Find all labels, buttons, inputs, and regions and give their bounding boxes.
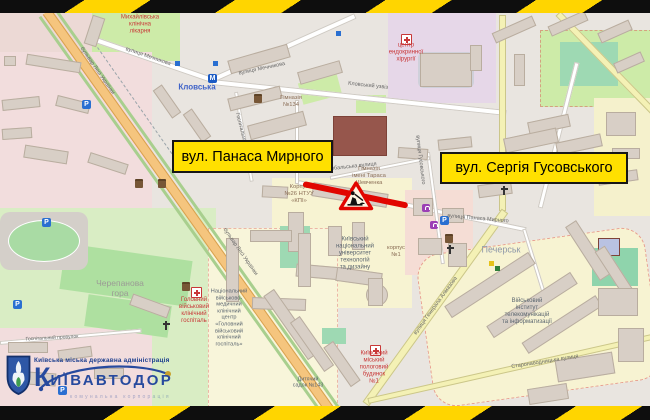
poi-blue-icon — [175, 61, 180, 66]
parking-icon: P — [42, 218, 51, 227]
parking-icon: P — [82, 100, 91, 109]
map-label-gymnasium-134: Гімназія №134 — [280, 95, 302, 109]
banner-serhiia-husovskoho-text: вул. Сергія Гусовського — [455, 160, 612, 176]
map-label-maternity-hospital-1: Київський міський пологовий будинок №1 — [360, 350, 389, 385]
parking-icon: P — [13, 300, 22, 309]
map-label-military-telecom-institute: Військовий інститут телекомунікацій та і… — [502, 298, 552, 326]
library-icon — [254, 94, 262, 103]
map-label-mykhailivska-hospital: Михайлівська клінічна лікарня — [121, 14, 159, 35]
map-announcement-image: M P P P P P Михайлівська клінічна лікарн… — [0, 0, 650, 420]
shop-icon — [422, 204, 430, 212]
metro-entrance-icon — [495, 266, 500, 271]
building — [250, 230, 292, 242]
logo-subtitle: комунальна корпорація — [70, 394, 171, 400]
building — [418, 238, 442, 255]
shop-icon — [430, 221, 438, 229]
banner-panasa-myrnoho: вул. Панаса Мирного — [172, 140, 333, 173]
building — [183, 108, 212, 142]
building — [420, 53, 472, 87]
building — [298, 233, 311, 287]
metro-entrance-icon — [489, 261, 494, 266]
map-label-pechersk-station: Печерськ — [481, 245, 520, 256]
banner-serhiia-husovskoho: вул. Сергія Гусовського — [440, 152, 628, 184]
building — [606, 112, 636, 136]
building — [368, 278, 383, 306]
logo-brand-initial: К — [34, 366, 50, 389]
logo-brand-rest: ИЇВАВТОДОР — [50, 373, 173, 389]
building — [598, 288, 638, 316]
poi-blue-icon — [336, 31, 341, 36]
church-icon — [446, 244, 454, 254]
building — [153, 84, 182, 118]
church-icon — [162, 320, 170, 330]
map-label-korpus-1: корпус №1 — [387, 245, 405, 259]
scales-icon — [445, 234, 453, 243]
building — [514, 54, 525, 86]
banner-panasa-myrnoho-text: вул. Панаса Мирного — [181, 149, 323, 165]
museum-icon — [158, 179, 166, 188]
hazard-stripe-bottom — [0, 406, 650, 420]
building — [470, 45, 482, 71]
kyivavtodor-logo: Київська міська державна адміністрація К… — [4, 350, 204, 402]
map-label-knutd-university: Київський національний університет техно… — [336, 236, 374, 271]
hazard-stripe-top — [0, 0, 650, 13]
map-label-klovska-station: Кловська — [178, 82, 215, 91]
roadworks-sign-icon — [338, 180, 374, 217]
map-label-endocrine-center: центр ендокринної хірургії — [389, 42, 423, 63]
logo-brand-text: КИЇВАВТОДОР — [34, 366, 173, 389]
map-label-military-medical-center: Національний військово- медичний клінічн… — [211, 288, 247, 347]
map-label-kindergarten-143: Дитячий садок №143 — [293, 377, 323, 390]
building — [2, 127, 33, 140]
church-icon — [500, 185, 508, 195]
kyiv-coat-of-arms-icon — [6, 355, 31, 396]
map-label-cherepanova-hora: Черепанова гора — [96, 278, 144, 298]
museum-icon — [135, 179, 143, 188]
building — [618, 328, 644, 362]
map-label-military-hospital-red: Головний військовий клінічний госпіталь — [179, 297, 209, 325]
poi-blue-icon — [213, 61, 218, 66]
building — [438, 136, 473, 150]
building — [4, 56, 16, 66]
building — [398, 147, 429, 160]
building — [333, 116, 387, 156]
street-label-klovskyi-uzviz: Кловський узвіз — [348, 81, 388, 92]
museum-icon — [182, 282, 190, 291]
